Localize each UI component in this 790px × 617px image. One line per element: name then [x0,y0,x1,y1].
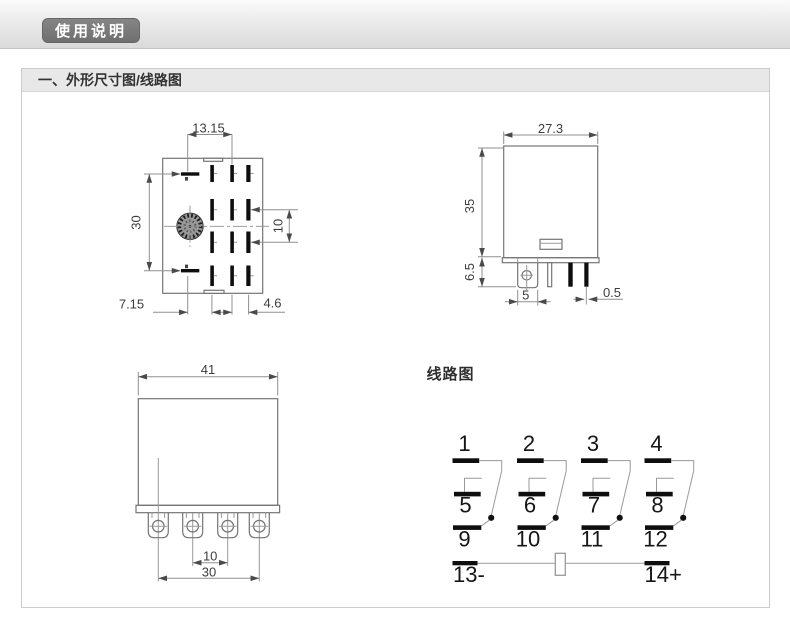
pin [548,263,552,287]
pin-number: 8 [651,493,663,518]
dim-label: 13.15 [192,121,225,136]
dimension-width: 27.3 [504,121,598,144]
pin-number: 2 [523,431,535,456]
contact-group-2: 2 6 10 [516,431,566,552]
dim-label: 6.5 [462,263,477,281]
contact-bar-com [581,458,608,463]
base-strip [136,505,280,512]
dim-label: 35 [462,199,477,213]
pin-number: 5 [459,493,471,518]
contact-group-1: 1 5 9 [453,431,502,552]
relay-body-outline [138,399,277,506]
page: 使用说明 一、外形尺寸图/线路图 [0,0,790,617]
pin-number: 14+ [645,562,682,587]
contact-group-4: 4 8 12 [643,431,693,552]
circuit-title: 线路图 [427,365,475,383]
contact-point [617,515,623,521]
dim-label: 41 [201,362,215,377]
bottom-view-drawing: 13.15 30 10 [119,121,298,315]
pin-slot [181,172,199,175]
dimension-top-width: 13.15 [188,121,232,172]
dim-label: 10 [203,549,217,564]
dimension-left-height: 30 [129,174,181,271]
coil-row: 13- 14+ [453,553,682,587]
contact-point [553,515,559,521]
dim-label: 0.5 [603,285,621,300]
pin-number: 6 [524,493,536,518]
diagram-area: 13.15 30 10 [22,91,769,607]
pin-mark [185,177,188,181]
section-panel: 一、外形尺寸图/线路图 [21,68,770,608]
dim-label: 5 [522,288,529,303]
bottom-notch [204,290,224,293]
front-view-drawing: 41 10 30 [136,362,280,582]
contact-group-3: 3 7 11 [581,431,631,552]
pin-mark [185,265,188,269]
dimension-pin-span: 30 [158,564,259,579]
pin-number: 11 [581,527,604,552]
top-band: 使用说明 [0,0,790,49]
dimension-width: 41 [138,362,277,396]
pin-slot [181,269,199,272]
pin-number: 3 [587,431,599,456]
contact-bar-com [645,458,672,463]
top-notch [204,158,223,161]
diagram-canvas: 13.15 30 10 [22,91,769,607]
pin-number: 4 [650,431,662,456]
relay-body-outline [504,146,598,258]
label-window [540,239,562,249]
contact-bar-com [453,458,480,463]
dimension-pin-height: 6.5 [462,258,516,287]
side-view-drawing: 27.3 35 6.5 [462,121,623,306]
contact-point [488,515,494,521]
terminal-tabs [148,513,269,538]
pin [568,263,572,287]
dimension-height: 35 [462,148,503,257]
pin-number: 9 [458,527,470,552]
pin-number: 12 [643,527,667,552]
dim-label: 27.3 [538,121,563,136]
section-title: 一、外形尺寸图/线路图 [22,69,769,92]
circuit-diagram: 线路图 1 5 9 [427,365,694,587]
dim-label: 7.15 [119,297,144,312]
base-strip [502,258,599,263]
dim-label: 30 [202,564,216,579]
dim-label: 30 [129,215,144,229]
pin-number: 10 [516,527,540,552]
coil-symbol [555,553,565,575]
dim-label: 10 [271,219,286,233]
pin-slot-grid [210,165,253,286]
pin-number: 1 [458,431,470,456]
dimension-pin-pitch: 10 [193,549,228,564]
contact-bar-com [517,458,544,463]
usage-instructions-tab[interactable]: 使用说明 [42,18,140,43]
dimension-pin-thickness: 0.5 [574,285,624,300]
dimension-bottom: 7.15 4.6 [119,276,285,315]
pin-number: 7 [588,493,600,518]
dimension-tab-width: 5 [505,288,551,306]
mounting-tab [518,263,538,290]
dim-label: 4.6 [263,296,281,311]
pin-number: 13- [453,562,485,587]
contact-point [680,515,686,521]
pin [584,263,588,287]
